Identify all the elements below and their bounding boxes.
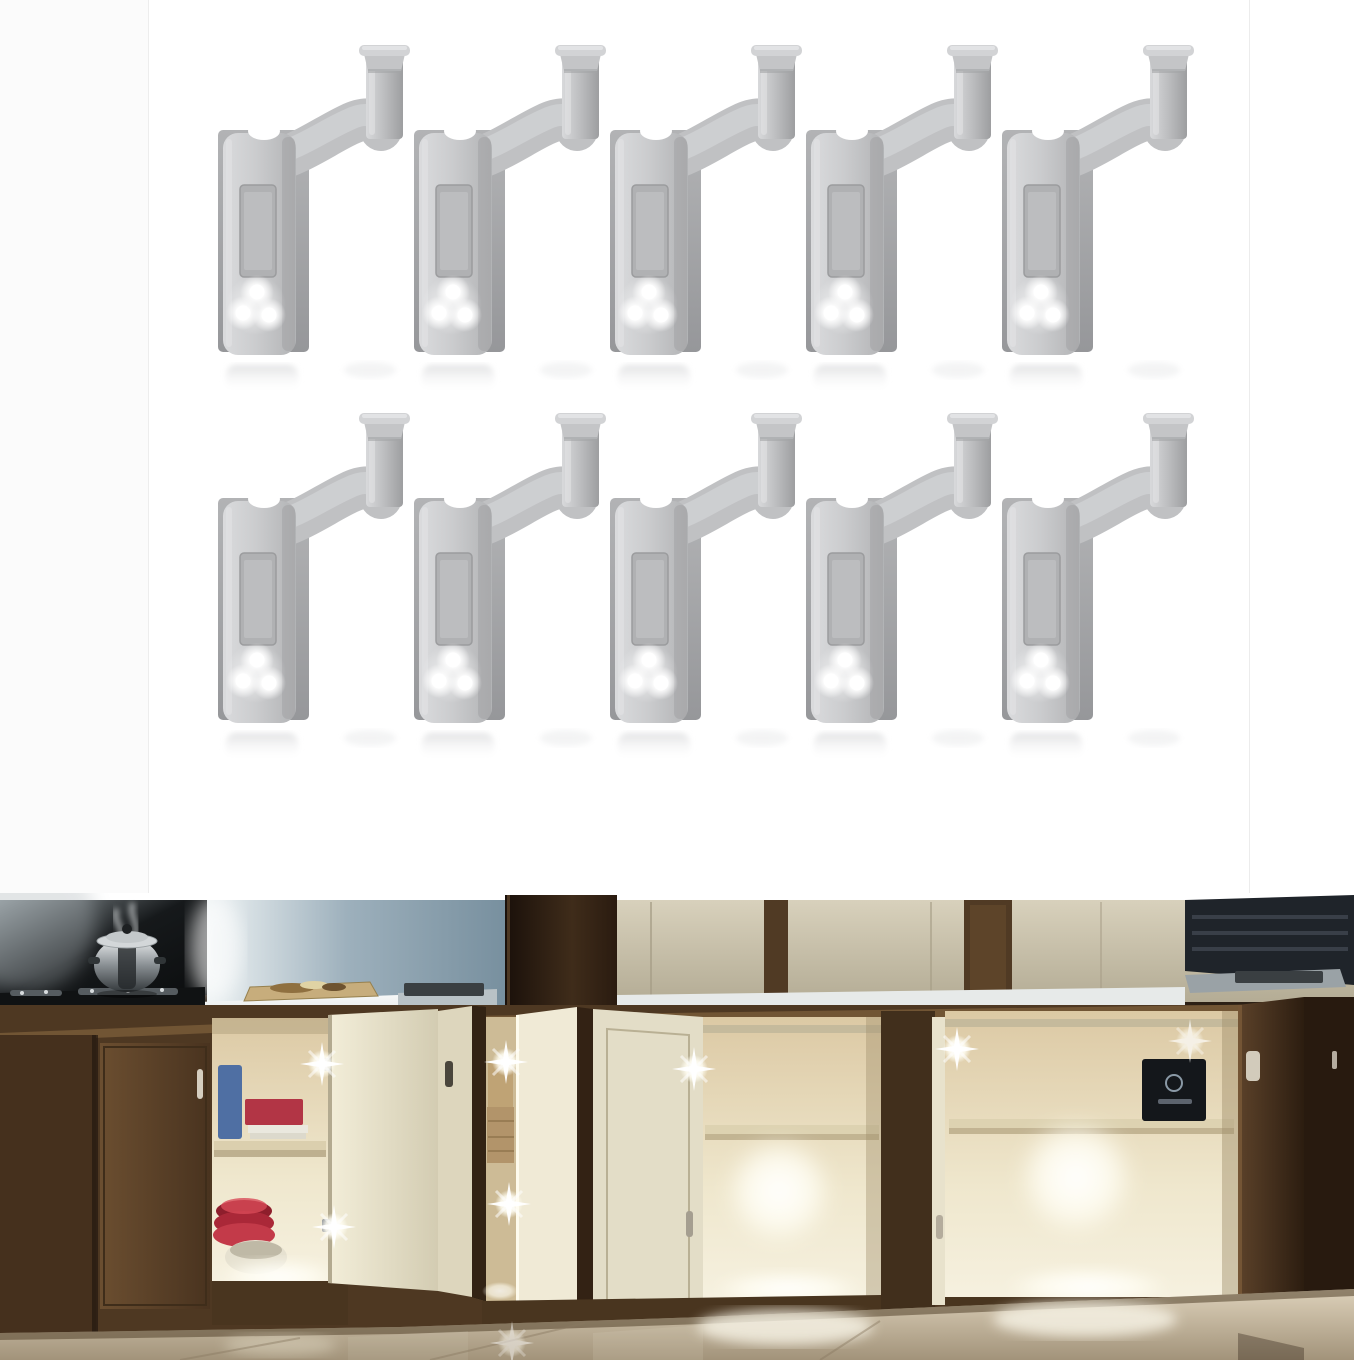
floor-reflection bbox=[993, 1301, 1177, 1337]
hinge-panel bbox=[632, 185, 668, 277]
hinge-panel bbox=[828, 553, 864, 645]
hinge-reflection bbox=[226, 365, 298, 393]
hinge-panel bbox=[240, 553, 276, 645]
hinge-leds bbox=[226, 643, 286, 703]
led-hinge-light bbox=[806, 45, 1006, 400]
floor-reflection bbox=[697, 1309, 873, 1345]
led-hinge-light bbox=[414, 45, 614, 400]
hinge-reflection bbox=[814, 365, 886, 393]
hinge-leds bbox=[618, 643, 678, 703]
led-hinge-light bbox=[414, 413, 614, 768]
led-hinge-light bbox=[1002, 413, 1202, 768]
side-panel bbox=[0, 1035, 96, 1335]
led-hinge-light bbox=[806, 413, 1006, 768]
tall-wood-column bbox=[505, 895, 617, 1013]
hinge-plunger bbox=[359, 413, 410, 507]
hinge-panel bbox=[1024, 185, 1060, 277]
led-hinge-light bbox=[610, 413, 810, 768]
hinge-leds bbox=[1010, 275, 1070, 335]
hinge-panel bbox=[1024, 553, 1060, 645]
hinge-plunger bbox=[751, 413, 802, 507]
hinge-leds bbox=[422, 275, 482, 335]
hinge-reflection bbox=[814, 733, 886, 761]
door-handle bbox=[197, 1069, 203, 1099]
hinge-plunger bbox=[1143, 413, 1194, 507]
cabinet-door-open bbox=[516, 1007, 577, 1323]
led-hinge-light bbox=[218, 45, 418, 400]
page bbox=[0, 0, 1354, 1360]
hinge-plunger bbox=[1143, 45, 1194, 139]
hinge-panel bbox=[436, 553, 472, 645]
open-cabinet-interior bbox=[945, 1011, 1238, 1307]
hinge-plunger bbox=[947, 413, 998, 507]
led-hinge-light bbox=[218, 413, 418, 768]
hinge-leds bbox=[1010, 643, 1070, 703]
kitchen-demo-photo bbox=[0, 893, 1354, 1360]
door-handle bbox=[936, 1215, 943, 1239]
hinge-reflection bbox=[618, 365, 690, 393]
hinge-plunger bbox=[359, 45, 410, 139]
led-hinge-light bbox=[1002, 45, 1202, 400]
hinge-panel bbox=[436, 185, 472, 277]
hinge-reflection bbox=[618, 733, 690, 761]
hinge-plunger bbox=[555, 45, 606, 139]
open-cabinet-interior bbox=[703, 1017, 881, 1307]
closed-door bbox=[100, 1043, 210, 1309]
hinge-leds bbox=[814, 643, 874, 703]
hinge-reflection bbox=[422, 365, 494, 393]
hinge-leds bbox=[422, 643, 482, 703]
hinge-grid bbox=[0, 0, 1354, 893]
hinge-plunger bbox=[555, 413, 606, 507]
hinge-panel bbox=[828, 185, 864, 277]
hinge-leds bbox=[814, 275, 874, 335]
hinge-plunger bbox=[751, 45, 802, 139]
hinge-leds bbox=[226, 275, 286, 335]
door-handle bbox=[1332, 1051, 1337, 1069]
hinge-panel bbox=[240, 185, 276, 277]
led-hinge-light bbox=[610, 45, 810, 400]
cabinet-door-open bbox=[438, 1006, 472, 1297]
hinge-leds bbox=[618, 275, 678, 335]
door-handle bbox=[686, 1211, 693, 1237]
hinge-plunger bbox=[947, 45, 998, 139]
hinge-reflection bbox=[1010, 365, 1082, 393]
door-handle bbox=[445, 1061, 453, 1087]
door-handle bbox=[1246, 1051, 1260, 1081]
hinge-reflection bbox=[226, 733, 298, 761]
appliance-box bbox=[1142, 1059, 1206, 1121]
red-plates bbox=[213, 1198, 275, 1247]
cabinet-door-open bbox=[320, 1009, 438, 1291]
hinge-panel bbox=[632, 553, 668, 645]
cabinet-door-edge bbox=[932, 1017, 945, 1305]
hinge-reflection bbox=[422, 733, 494, 761]
hinge-reflection bbox=[1010, 733, 1082, 761]
product-image-panel bbox=[0, 0, 1354, 893]
